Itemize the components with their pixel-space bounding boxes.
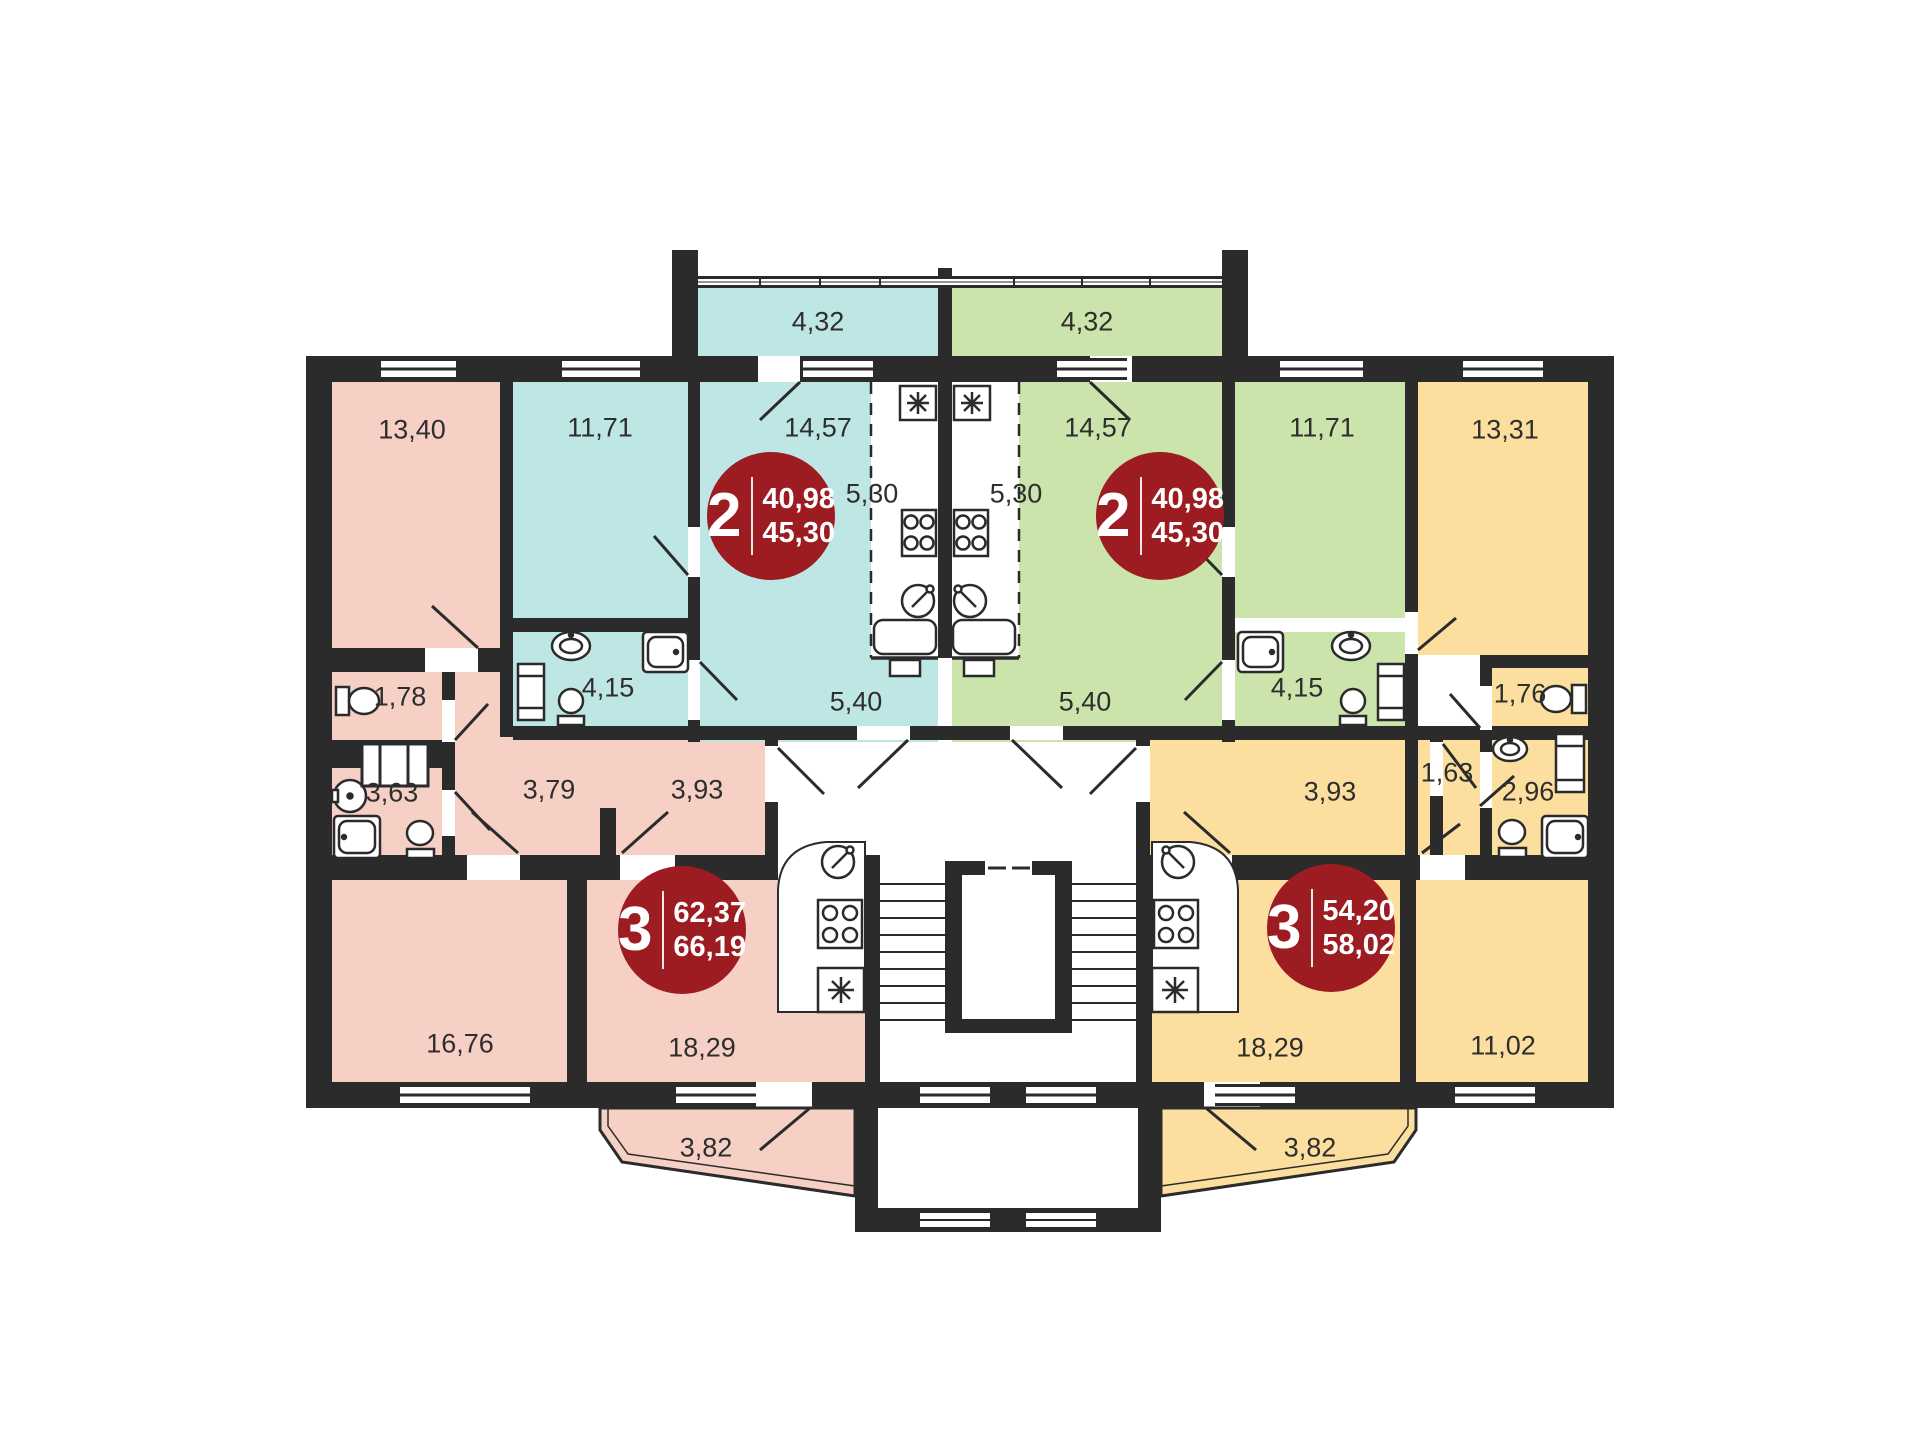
floor-plan: 4,32 11,71 14,57 5,30 4,15 5,40 4,32 14,… [0, 0, 1920, 1436]
room-label-bath: 4,15 [1271, 673, 1324, 704]
door-opening [765, 746, 778, 802]
wall [332, 740, 455, 768]
room-label-hall: 5,40 [830, 687, 883, 718]
room-label-hall1: 3,79 [523, 775, 576, 806]
wall [865, 855, 880, 1082]
window [562, 358, 640, 380]
room-label-hall2: 3,93 [671, 775, 724, 806]
room-label-living: 14,57 [784, 413, 852, 444]
room-label-closet: 1,63 [1421, 758, 1474, 789]
wall [600, 808, 616, 880]
door-opening [758, 356, 800, 382]
badge-rooms-count: 2 [707, 485, 741, 547]
room-label-bath: 2,96 [1502, 777, 1555, 808]
wall [1136, 855, 1152, 1082]
door-opening [467, 855, 520, 880]
room-label-bedroom2: 11,02 [1470, 1031, 1536, 1062]
elevator-wall [945, 1019, 1072, 1033]
room-label-bedroom1: 13,40 [378, 415, 446, 446]
room-label-living: 14,57 [1064, 413, 1132, 444]
wall [500, 382, 513, 737]
apartment-badge-2-right[interactable]: 2 40,98 45,30 [1096, 452, 1224, 580]
badge-divider [1311, 889, 1313, 967]
apartment-badge-3-left[interactable]: 3 62,37 66,19 [618, 866, 746, 994]
room-label-balcony: 3,82 [1284, 1133, 1337, 1164]
door-opening [442, 790, 455, 836]
window [1215, 1084, 1295, 1106]
window [1463, 358, 1543, 380]
window [1455, 1084, 1535, 1106]
window [1026, 1210, 1096, 1230]
badge-rooms-count: 3 [1267, 897, 1301, 959]
apartment-badge-3-right[interactable]: 3 54,20 58,02 [1267, 864, 1395, 992]
door-opening [688, 527, 700, 577]
elevator-wall [1055, 861, 1072, 1033]
badge-area-total: 45,30 [1151, 516, 1224, 550]
room-label-bedroom2: 16,76 [426, 1029, 494, 1060]
badge-area-living: 40,98 [762, 482, 835, 516]
room-label-kitchen: 5,30 [990, 479, 1043, 510]
staircase-left-flight [880, 884, 945, 1020]
wall [332, 648, 513, 672]
window [1280, 358, 1363, 380]
door-opening [857, 726, 910, 740]
kitchen-niche-cyan [871, 382, 938, 658]
door-opening [1420, 855, 1465, 880]
room-label-wc: 1,76 [1494, 679, 1547, 710]
badge-area-total: 58,02 [1322, 928, 1395, 962]
wall [567, 880, 587, 1082]
wall [1405, 356, 1418, 862]
room-label-hall: 5,40 [1059, 687, 1112, 718]
badge-area-living: 54,20 [1322, 894, 1395, 928]
door-opening [1222, 660, 1235, 720]
wall [938, 356, 952, 658]
wall [700, 726, 1152, 740]
door-opening [442, 700, 455, 742]
room-label-bedroom: 11,71 [1289, 413, 1355, 444]
door-opening [688, 660, 700, 720]
balcony-glazing [698, 276, 1222, 288]
wall [513, 726, 700, 740]
badge-area-total: 45,30 [762, 516, 835, 550]
door-opening [1480, 752, 1492, 808]
wall [306, 356, 332, 1108]
window [676, 1084, 756, 1106]
badge-area-living: 62,37 [673, 896, 746, 930]
door-opening [1136, 746, 1150, 802]
door-opening [425, 648, 478, 672]
wall [1152, 726, 1614, 740]
room-label-bedroom: 11,71 [567, 413, 633, 444]
apartment-badge-2-left[interactable]: 2 40,98 45,30 [707, 452, 835, 580]
room-label-living: 18,29 [668, 1033, 736, 1064]
staircase-right-flight [1072, 884, 1136, 1020]
window [400, 1084, 530, 1106]
door-opening [1010, 726, 1063, 740]
elevator-wall [945, 861, 962, 1033]
elevator-door-opening [985, 861, 1032, 875]
window [381, 358, 456, 380]
badge-rooms-count: 2 [1096, 485, 1130, 547]
room-label-bedroom1: 13,31 [1471, 415, 1539, 446]
badge-area-total: 66,19 [673, 930, 746, 964]
balcony-pillar [1222, 250, 1248, 382]
door-opening [1480, 686, 1492, 730]
wall [513, 618, 688, 632]
room-label-bath: 3,63 [366, 778, 419, 809]
badge-divider [1140, 477, 1142, 555]
badge-divider [662, 891, 664, 969]
wall [1400, 880, 1416, 1082]
room-label-wc: 1,78 [374, 682, 427, 713]
window [920, 1210, 990, 1230]
kitchen-niche-green [952, 382, 1019, 658]
door-opening [756, 1082, 812, 1108]
badge-rooms-count: 3 [618, 899, 652, 961]
room-label-balcony: 4,32 [792, 307, 845, 338]
window [803, 358, 873, 380]
room-label-balcony: 4,32 [1061, 307, 1114, 338]
window [1057, 358, 1127, 380]
wall [1480, 655, 1588, 668]
vestibule-wall [855, 1208, 1161, 1232]
room-label-balcony: 3,82 [680, 1133, 733, 1164]
kitchen-sink-icon [822, 846, 854, 878]
room-label-bath: 4,15 [582, 673, 635, 704]
room-label-living: 18,29 [1236, 1033, 1304, 1064]
window [1026, 1084, 1096, 1106]
door-opening [1405, 612, 1418, 654]
badge-divider [751, 477, 753, 555]
door-opening [1178, 855, 1232, 880]
badge-area-living: 40,98 [1151, 482, 1224, 516]
room-label-kitchen: 5,30 [846, 479, 899, 510]
window [920, 1084, 990, 1106]
balcony-pillar [672, 250, 698, 382]
room-label-hall: 3,93 [1304, 777, 1357, 808]
